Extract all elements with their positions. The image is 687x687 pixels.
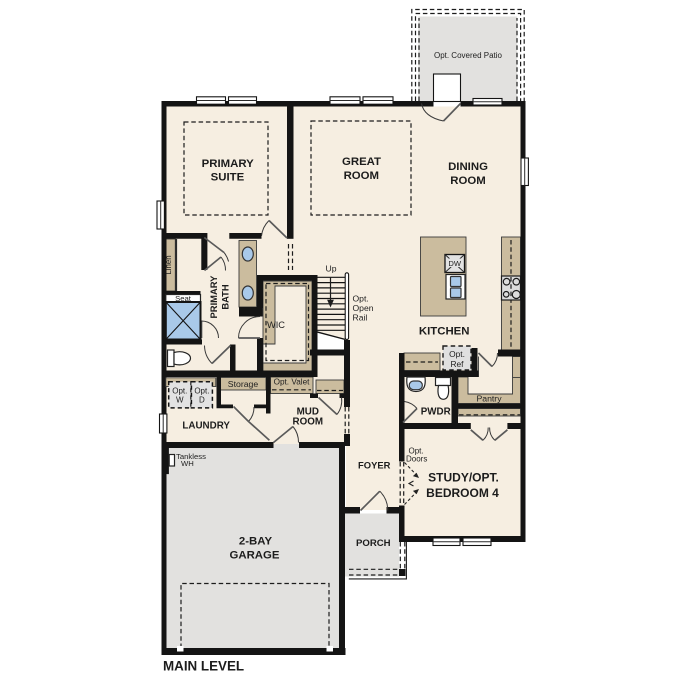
- svg-text:ROOM: ROOM: [293, 416, 323, 427]
- svg-text:Up: Up: [326, 264, 337, 274]
- svg-text:Storage: Storage: [228, 379, 259, 389]
- svg-text:Doors: Doors: [406, 455, 427, 464]
- svg-text:PORCH: PORCH: [356, 538, 391, 549]
- svg-text:Opt. Covered Patio: Opt. Covered Patio: [434, 51, 503, 60]
- svg-text:BEDROOM 4: BEDROOM 4: [426, 486, 499, 500]
- svg-text:WIC: WIC: [267, 320, 285, 330]
- svg-text:Ref: Ref: [450, 359, 464, 369]
- svg-text:W: W: [176, 396, 184, 405]
- svg-text:Opt.: Opt.: [194, 386, 209, 395]
- svg-text:MAIN LEVEL: MAIN LEVEL: [163, 659, 244, 674]
- svg-text:DINING: DINING: [448, 161, 488, 173]
- svg-text:SUITE: SUITE: [211, 172, 245, 184]
- svg-text:Opt.: Opt.: [172, 386, 187, 395]
- svg-text:STUDY/OPT.: STUDY/OPT.: [428, 471, 499, 485]
- svg-text:2-BAY: 2-BAY: [239, 536, 273, 548]
- svg-text:GARAGE: GARAGE: [230, 550, 280, 562]
- svg-text:DW: DW: [448, 259, 461, 268]
- svg-text:PWDR: PWDR: [421, 407, 451, 418]
- svg-text:Pantry: Pantry: [476, 394, 502, 404]
- svg-text:KITCHEN: KITCHEN: [419, 326, 470, 338]
- svg-text:PRIMARY: PRIMARY: [202, 158, 255, 170]
- svg-text:FOYER: FOYER: [358, 460, 391, 471]
- svg-text:ROOM: ROOM: [450, 175, 485, 187]
- svg-text:GREAT: GREAT: [342, 156, 381, 168]
- svg-text:Opt.: Opt.: [353, 294, 369, 304]
- svg-text:ROOM: ROOM: [344, 170, 379, 182]
- svg-text:BATH: BATH: [220, 284, 231, 310]
- svg-text:LAUNDRY: LAUNDRY: [182, 421, 230, 432]
- svg-text:Open: Open: [353, 303, 374, 313]
- svg-text:Opt.: Opt.: [449, 349, 465, 359]
- svg-text:WH: WH: [181, 459, 194, 468]
- svg-text:Opt. Valet: Opt. Valet: [274, 378, 311, 387]
- svg-text:Rail: Rail: [353, 313, 368, 323]
- svg-text:D: D: [199, 396, 205, 405]
- svg-text:PRIMARY: PRIMARY: [208, 275, 219, 319]
